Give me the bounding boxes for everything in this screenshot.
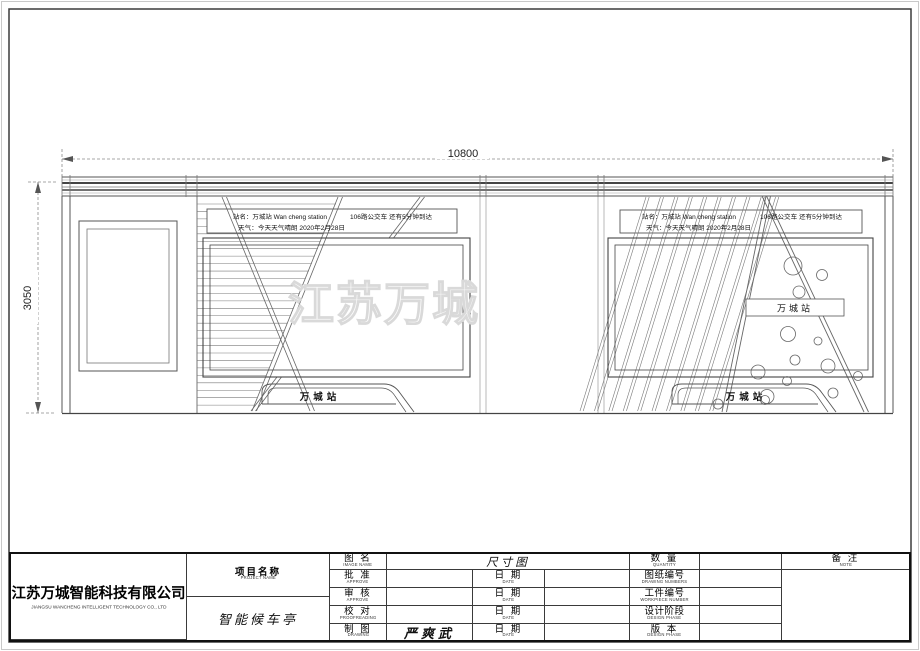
dim-width-value: 10800: [448, 148, 479, 160]
drafter-label-cell: 制 图 DRAWING: [330, 624, 387, 640]
review-date-value-cell: [545, 588, 630, 606]
project-name-value-cell: 智能候车亭: [187, 597, 330, 640]
drawing-number-value-cell: [700, 570, 782, 588]
shelter-roof: [62, 175, 893, 197]
proofread-value-cell: [387, 606, 473, 624]
quantity-value-cell: [700, 554, 782, 570]
bubble-circle: [821, 359, 835, 373]
project-name-value: 智能候车亭: [218, 609, 298, 628]
approve-label-en: APPROVE: [347, 580, 369, 584]
bubble-circle: [854, 372, 863, 381]
quantity-label-cell: 数 量 QUANTITY: [630, 554, 700, 570]
approve-value-cell: [387, 570, 473, 588]
drawing-name-value: 尺寸图: [486, 554, 530, 570]
workpiece-number-label-en: WORKPIECE NUMBER: [640, 598, 688, 602]
version-value-cell: [700, 624, 782, 640]
date-label-en: DATE: [503, 580, 515, 584]
drafter-date-value-cell: [545, 624, 630, 640]
end-light-box: [79, 221, 177, 371]
station-name-text: 站名：万城站 Wan cheng station: [233, 213, 328, 221]
company-name-en: JIANGSU WANCHENG INTELLIGENT TECHNOLOGY …: [31, 605, 166, 610]
workpiece-number-label-cell: 工件编号 WORKPIECE NUMBER: [630, 588, 700, 606]
date-label-en: DATE: [503, 616, 515, 620]
station-name-text: 站名：万城站 Wan cheng station: [642, 213, 737, 221]
station-sign-label: 万城站: [299, 391, 341, 403]
bubble-circle: [828, 388, 838, 398]
drafter-date-label-cell: 日 期 DATE: [473, 624, 545, 640]
station-sign-bottom-right: 万城站: [672, 384, 836, 412]
project-name-label-cell: 项目名称 PROJECT NAME: [187, 554, 330, 597]
dim-height-value: 3050: [22, 286, 34, 310]
version-label-cell: 版 本 DESIGN PHASE: [630, 624, 700, 640]
design-phase-label-en: DESIGN PHASE: [647, 616, 681, 620]
dimension-height: 3050: [22, 182, 58, 413]
bubble-circle: [793, 286, 805, 298]
watermark-text: 江苏万城: [288, 278, 480, 330]
dimension-width: 10800: [62, 146, 893, 175]
bubble-circle: [817, 270, 828, 281]
proofread-date-value-cell: [545, 606, 630, 624]
station-sign-bottom-left: 万城站: [262, 384, 414, 412]
design-phase-value-cell: [700, 606, 782, 624]
design-phase-label-cell: 设计阶段 DESIGN PHASE: [630, 606, 700, 624]
bubble-circle: [781, 327, 796, 342]
drawing-number-label-cell: 图纸编号 DRAWING NUMBERS: [630, 570, 700, 588]
drawing-name-value-cell: 尺寸图: [387, 554, 630, 570]
review-label-cell: 审 核 APPROVE: [330, 588, 387, 606]
proofread-date-label-cell: 日 期 DATE: [473, 606, 545, 624]
bubble-circle: [790, 355, 800, 365]
date-label-en: DATE: [503, 598, 515, 602]
review-value-cell: [387, 588, 473, 606]
drawing-sheet: 10800 3050: [0, 0, 920, 651]
proofread-label-en: PROOFREADING: [340, 616, 377, 620]
drafter-value-cell: 严爽武: [387, 624, 473, 640]
weather-text: 天气：今天天气晴朗 2020年2月28日: [238, 224, 345, 232]
company-cell: 江苏万城智能科技有限公司 JIANGSU WANCHENG INTELLIGEN…: [11, 554, 187, 640]
station-sign-label: 万城站: [777, 303, 813, 314]
quantity-label-en: QUANTITY: [653, 563, 676, 567]
company-name-cn: 江苏万城智能科技有限公司: [12, 582, 186, 603]
review-date-label-cell: 日 期 DATE: [473, 588, 545, 606]
note-label-cell: 备 注 NOTE: [782, 554, 909, 570]
weather-text: 天气：今天天气晴朗 2020年2月28日: [646, 224, 751, 232]
proofread-label-cell: 校 对 PROOFREADING: [330, 606, 387, 624]
title-block: 江苏万城智能科技有限公司 JIANGSU WANCHENG INTELLIGEN…: [9, 552, 911, 642]
approve-date-label-cell: 日 期 DATE: [473, 570, 545, 588]
approve-label-cell: 批 准 APPROVE: [330, 570, 387, 588]
bus-arrival-text: 106路公交车 还有5分钟到达: [350, 213, 432, 221]
review-label-en: APPROVE: [347, 598, 369, 602]
workpiece-number-value-cell: [700, 588, 782, 606]
station-sign-mid-right: 万城站: [746, 299, 844, 316]
note-label-en: NOTE: [839, 563, 852, 567]
bubble-circle: [814, 337, 822, 345]
date-label-en: DATE: [503, 633, 515, 637]
drafter-signature: 严爽武: [404, 624, 455, 640]
project-name-label-en: PROJECT NAME: [240, 576, 275, 580]
drawing-name-label-cell: 图 名 IMAGE NAME: [330, 554, 387, 570]
drawing-name-label-en: IMAGE NAME: [344, 563, 373, 567]
bus-arrival-text: 106路公交车 还有5分钟到达: [760, 213, 842, 221]
version-label-en: DESIGN PHASE: [647, 633, 681, 637]
drawing-number-label-en: DRAWING NUMBERS: [642, 580, 687, 584]
drafter-label-en: DRAWING: [347, 633, 369, 637]
note-body-cell: [782, 570, 909, 640]
approve-date-value-cell: [545, 570, 630, 588]
